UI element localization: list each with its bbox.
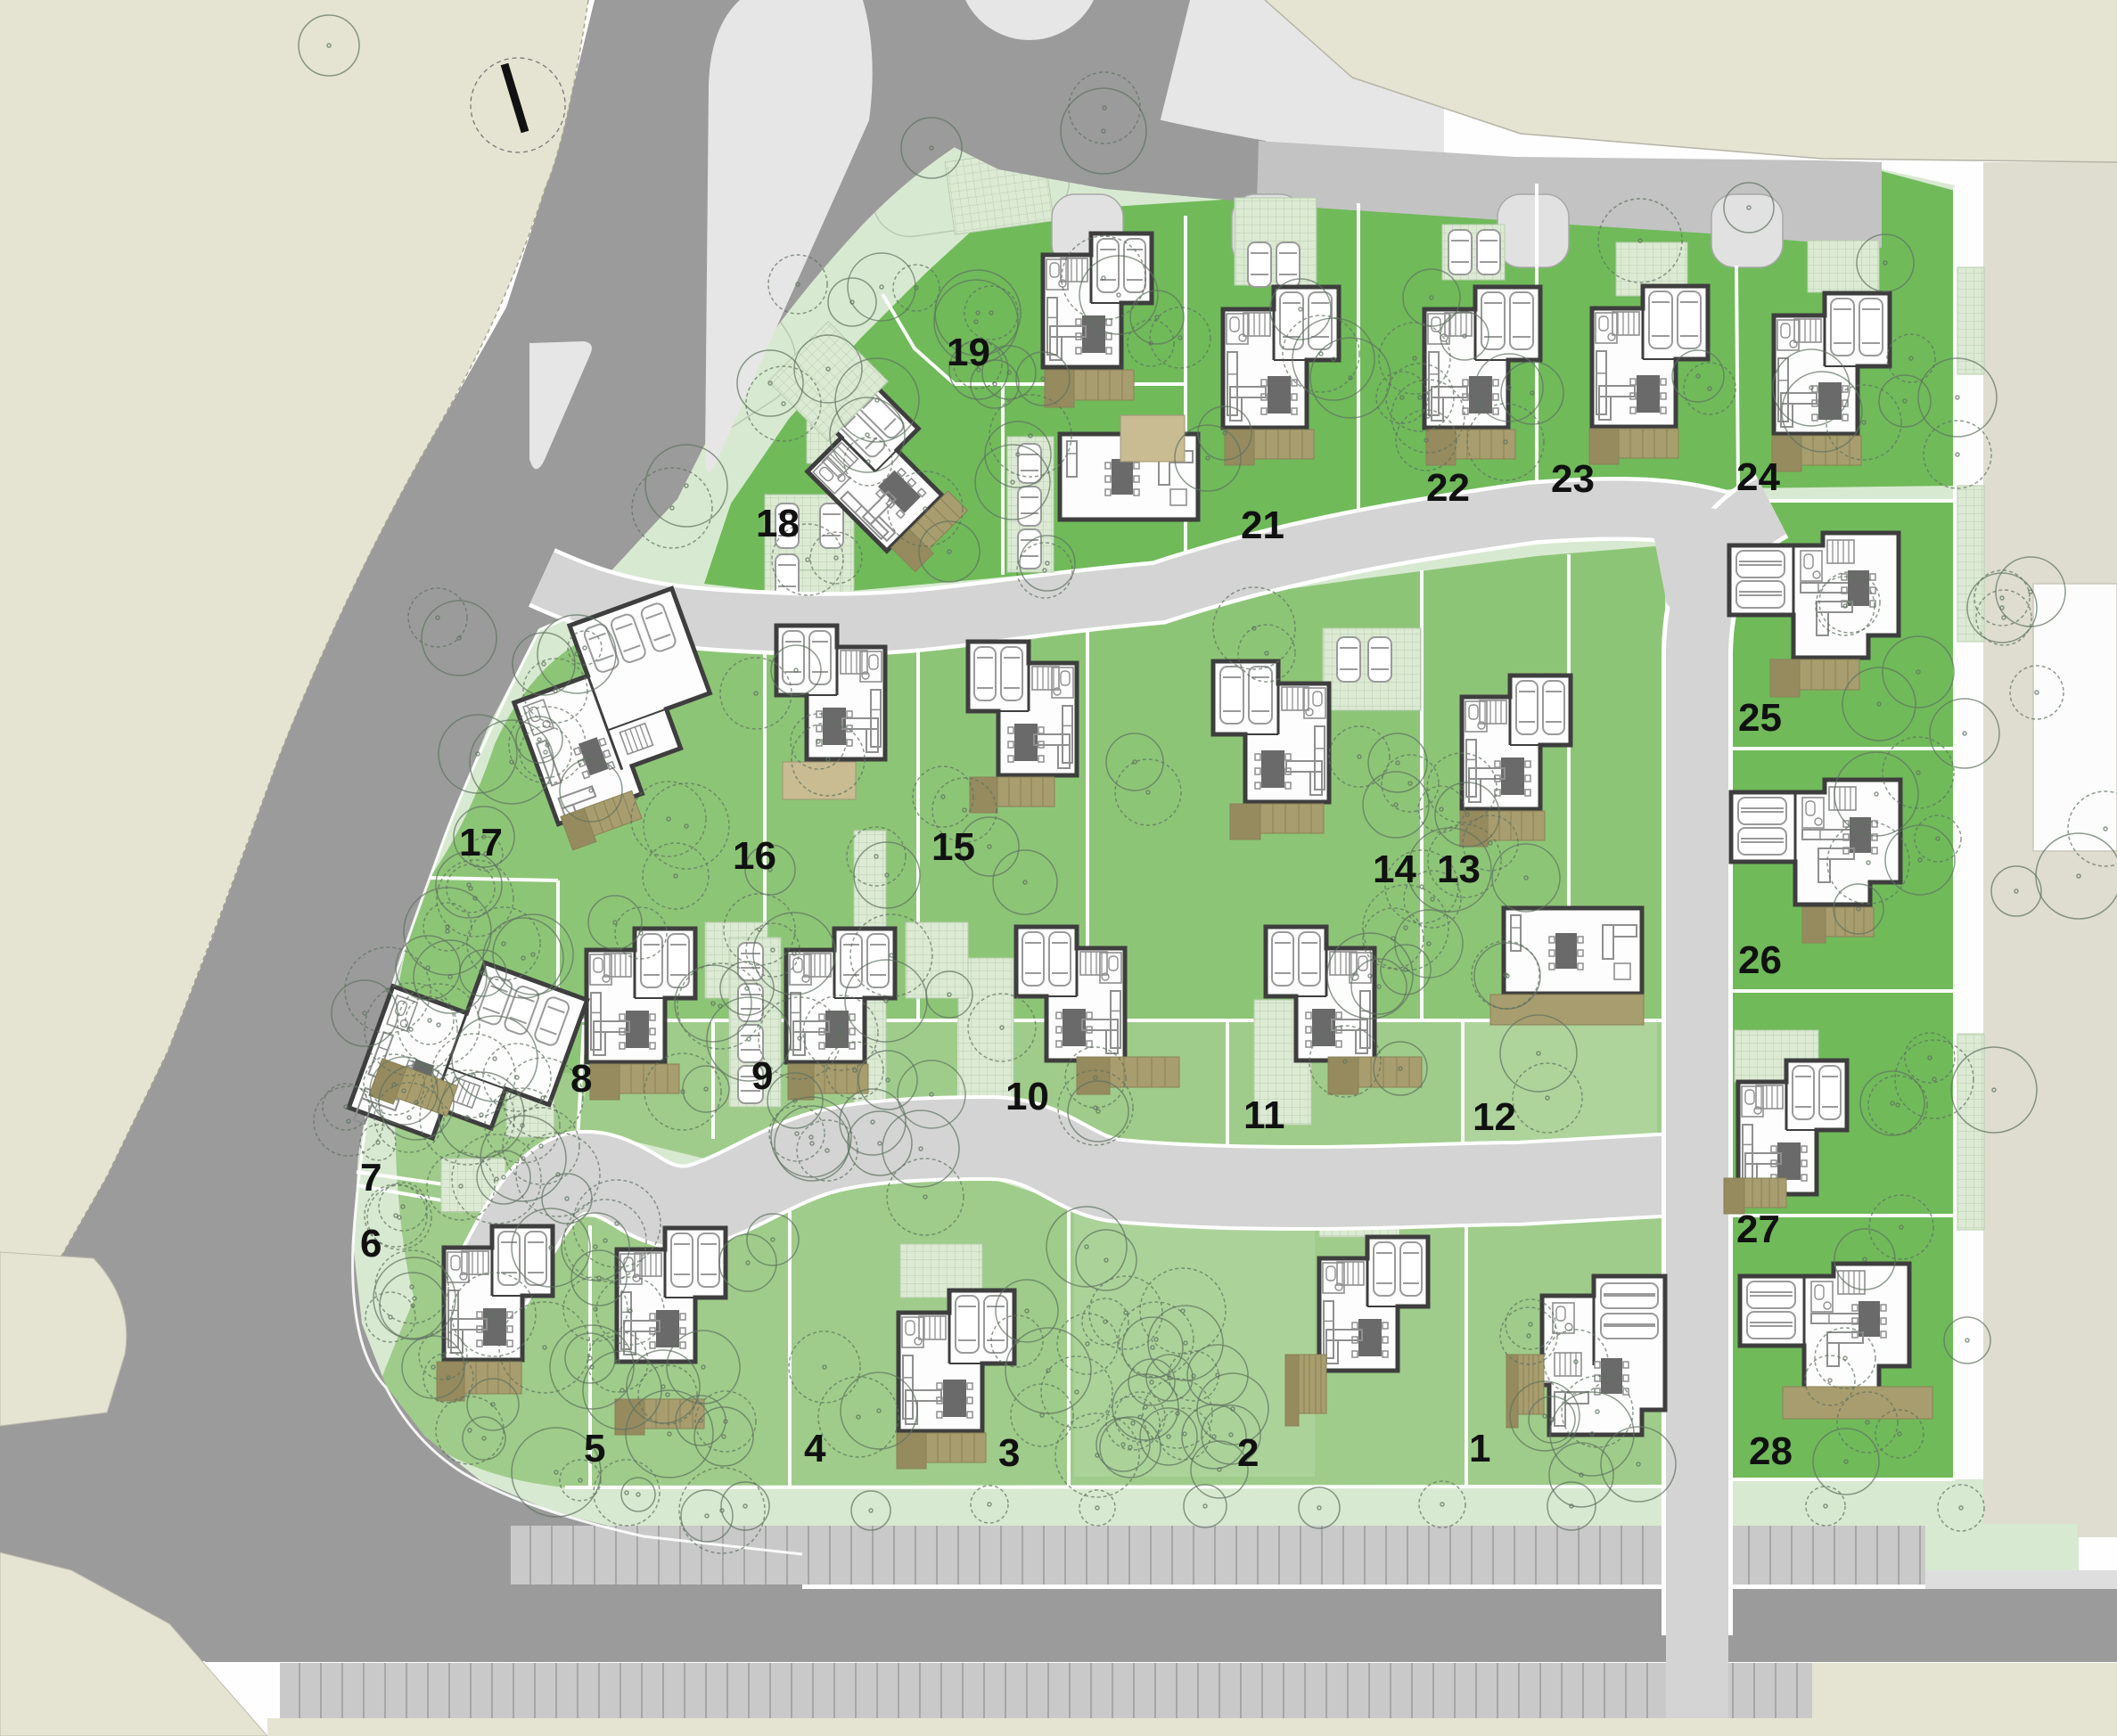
svg-text:4: 4 (804, 1427, 826, 1470)
svg-text:26: 26 (1738, 938, 1782, 982)
svg-text:3: 3 (998, 1431, 1020, 1475)
svg-text:14: 14 (1373, 848, 1416, 891)
svg-text:6: 6 (360, 1222, 382, 1265)
svg-text:11: 11 (1243, 1093, 1285, 1137)
svg-text:18: 18 (756, 502, 800, 545)
svg-text:25: 25 (1738, 696, 1782, 740)
svg-text:22: 22 (1426, 466, 1470, 510)
svg-text:28: 28 (1749, 1429, 1793, 1473)
svg-text:15: 15 (931, 825, 975, 869)
svg-text:16: 16 (733, 834, 776, 878)
svg-text:7: 7 (360, 1156, 382, 1200)
svg-text:9: 9 (751, 1054, 773, 1098)
svg-text:27: 27 (1736, 1208, 1780, 1251)
svg-text:10: 10 (1005, 1075, 1049, 1118)
svg-text:23: 23 (1551, 457, 1595, 501)
svg-text:21: 21 (1241, 504, 1284, 547)
svg-text:1: 1 (1469, 1427, 1490, 1470)
svg-text:24: 24 (1736, 455, 1780, 499)
svg-text:5: 5 (584, 1427, 605, 1470)
svg-text:8: 8 (570, 1057, 592, 1101)
svg-text:13: 13 (1437, 848, 1481, 891)
svg-text:2: 2 (1237, 1431, 1259, 1475)
svg-text:19: 19 (947, 331, 990, 374)
svg-text:17: 17 (459, 821, 503, 864)
svg-text:12: 12 (1473, 1095, 1516, 1139)
